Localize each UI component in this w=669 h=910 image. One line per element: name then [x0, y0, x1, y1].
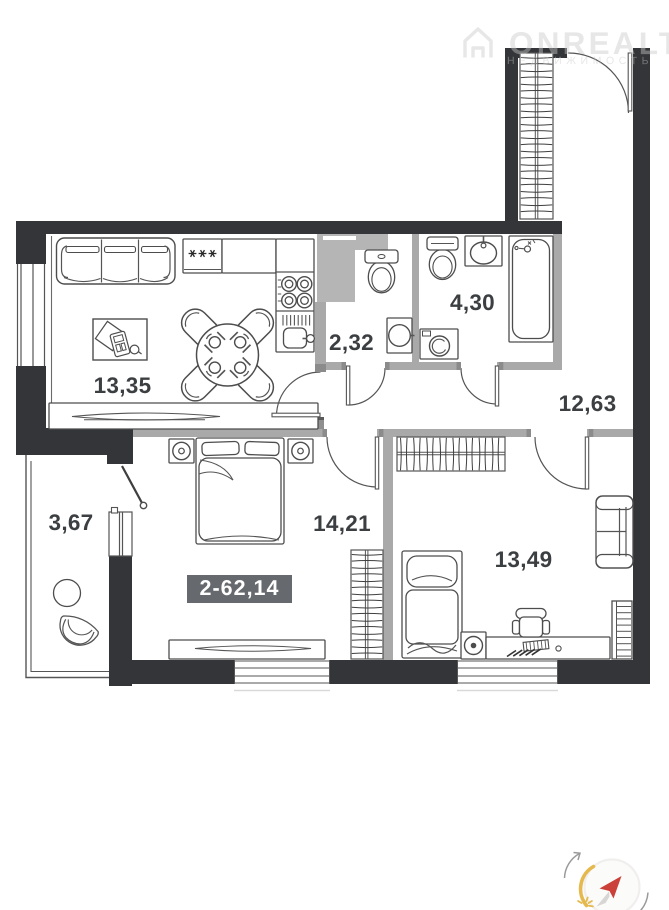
- svg-text:2,32: 2,32: [329, 330, 374, 355]
- svg-text:12,63: 12,63: [559, 391, 617, 416]
- svg-text:13,49: 13,49: [495, 547, 553, 572]
- svg-text:3,67: 3,67: [48, 510, 93, 535]
- svg-text:4,30: 4,30: [450, 290, 495, 315]
- svg-text:2-62,14: 2-62,14: [200, 576, 280, 600]
- svg-text:НЕДВИЖИМОСТЬ: НЕДВИЖИМОСТЬ: [507, 55, 653, 67]
- svg-text:13,35: 13,35: [94, 373, 152, 398]
- svg-text:14,21: 14,21: [313, 511, 371, 536]
